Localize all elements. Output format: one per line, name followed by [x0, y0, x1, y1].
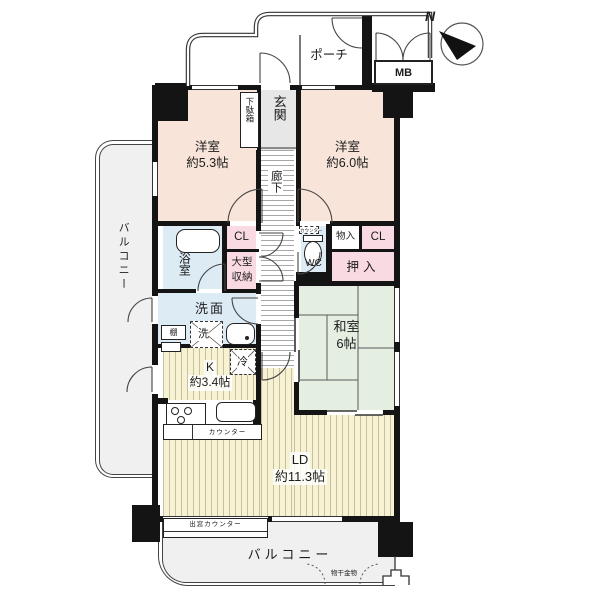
bathtub [176, 229, 220, 253]
bay-window-counter-label: 出窓カウンター [164, 521, 267, 529]
balcony-bottom-label: バルコニー [230, 547, 350, 564]
balcony-left [95, 140, 153, 478]
wall [156, 221, 230, 226]
room-ld-label: LD 約11.3帖 [245, 452, 355, 485]
hallway-label: 廊下 [268, 169, 283, 194]
wall [156, 289, 196, 293]
window [394, 352, 400, 406]
wall [256, 150, 261, 231]
porch-side-wall [362, 16, 372, 90]
wall [294, 410, 327, 415]
wall [294, 286, 299, 318]
wall [394, 406, 400, 522]
balcony-left-floor [99, 144, 155, 475]
bay-window-sill-line [164, 531, 267, 532]
shelf-label: 棚 [162, 328, 185, 338]
laundry-fitting-label: 物干金物 [324, 570, 364, 578]
oshiire-label: 押入 [332, 259, 394, 275]
counter-divider [192, 425, 193, 439]
wall [330, 221, 395, 226]
room-western-5-3-label: 洋室 約5.3帖 [160, 139, 255, 171]
wall [330, 249, 395, 252]
shelf: 棚 [161, 325, 186, 340]
bay-window-counter: 出窓カウンター [163, 518, 268, 538]
kitchen-counter: カウンター [163, 424, 262, 440]
entrance-door-opening [261, 85, 290, 90]
wall [224, 249, 259, 252]
floor-plan: MB 下駄箱 カウンター 棚 カウンター 出窓カウンター [0, 0, 600, 600]
room-name: 和室 [333, 319, 359, 334]
stove-burner [171, 407, 179, 415]
shoe-cabinet-label: 下駄箱 [244, 97, 255, 123]
room-name: K [204, 360, 216, 375]
wc-counter-label: カウンター [300, 228, 318, 234]
wall [394, 342, 400, 352]
window [192, 85, 238, 90]
stove-burner [184, 407, 192, 415]
room-kitchen-label: K 約3.4帖 [166, 360, 254, 391]
wc-counter: カウンター [299, 226, 319, 234]
shelf-lower [161, 342, 181, 352]
closet-east-label: CL [362, 230, 394, 245]
room-name: 洋室 [195, 140, 220, 154]
meter-box-label: MB [376, 66, 431, 80]
room-size: 約6.0帖 [326, 156, 368, 170]
wall [258, 221, 261, 226]
bathroom-label: 浴室 [176, 252, 191, 276]
wall [152, 196, 158, 296]
wall [383, 410, 398, 415]
wc-label: WC [301, 258, 326, 271]
large-storage-label: 大型収納 [229, 255, 255, 284]
kitchen-counter-label: カウンター [198, 429, 257, 437]
window [302, 85, 335, 90]
balcony-door-opening [152, 296, 158, 324]
compass [439, 23, 483, 65]
washroom-sink [226, 323, 255, 345]
pillar [155, 83, 188, 121]
window [272, 516, 342, 522]
large-storage-text: 大型収納 [232, 256, 253, 283]
genkan-label: 玄関 [270, 95, 287, 121]
kitchen-sink [216, 402, 256, 422]
stove [166, 403, 206, 426]
meter-box: MB [374, 60, 433, 85]
window [152, 162, 158, 196]
closet-west-label: CL [227, 230, 256, 245]
storage-east-label: 物入 [332, 231, 359, 243]
pillar [132, 505, 160, 542]
balcony-door-opening [152, 365, 158, 394]
window [394, 288, 400, 342]
room-size: 約11.3帖 [273, 469, 327, 486]
room-name: 洋室 [335, 140, 360, 154]
wall [294, 281, 398, 286]
wall [226, 289, 261, 293]
stove-burner [177, 416, 185, 424]
balcony-left-label: バルコニー [116, 222, 130, 292]
pillar [378, 522, 413, 557]
wall [256, 348, 261, 404]
ld-floor-upper [261, 368, 294, 516]
room-japanese-label: 和室 6帖 [299, 319, 394, 352]
room-name: LD [290, 452, 311, 469]
room-size: 約5.3帖 [186, 156, 228, 170]
washing-machine-label: 洗 [198, 327, 209, 341]
washroom-label: 洗面 [170, 301, 250, 318]
room-size: 約3.4帖 [188, 375, 233, 390]
room-size: 6帖 [336, 336, 356, 351]
room-western-6-0-label: 洋室 約6.0帖 [301, 139, 394, 171]
porch-label: ポーチ [298, 47, 360, 63]
compass-north-label: N [425, 8, 435, 26]
washroom-sink-drain [245, 336, 249, 340]
